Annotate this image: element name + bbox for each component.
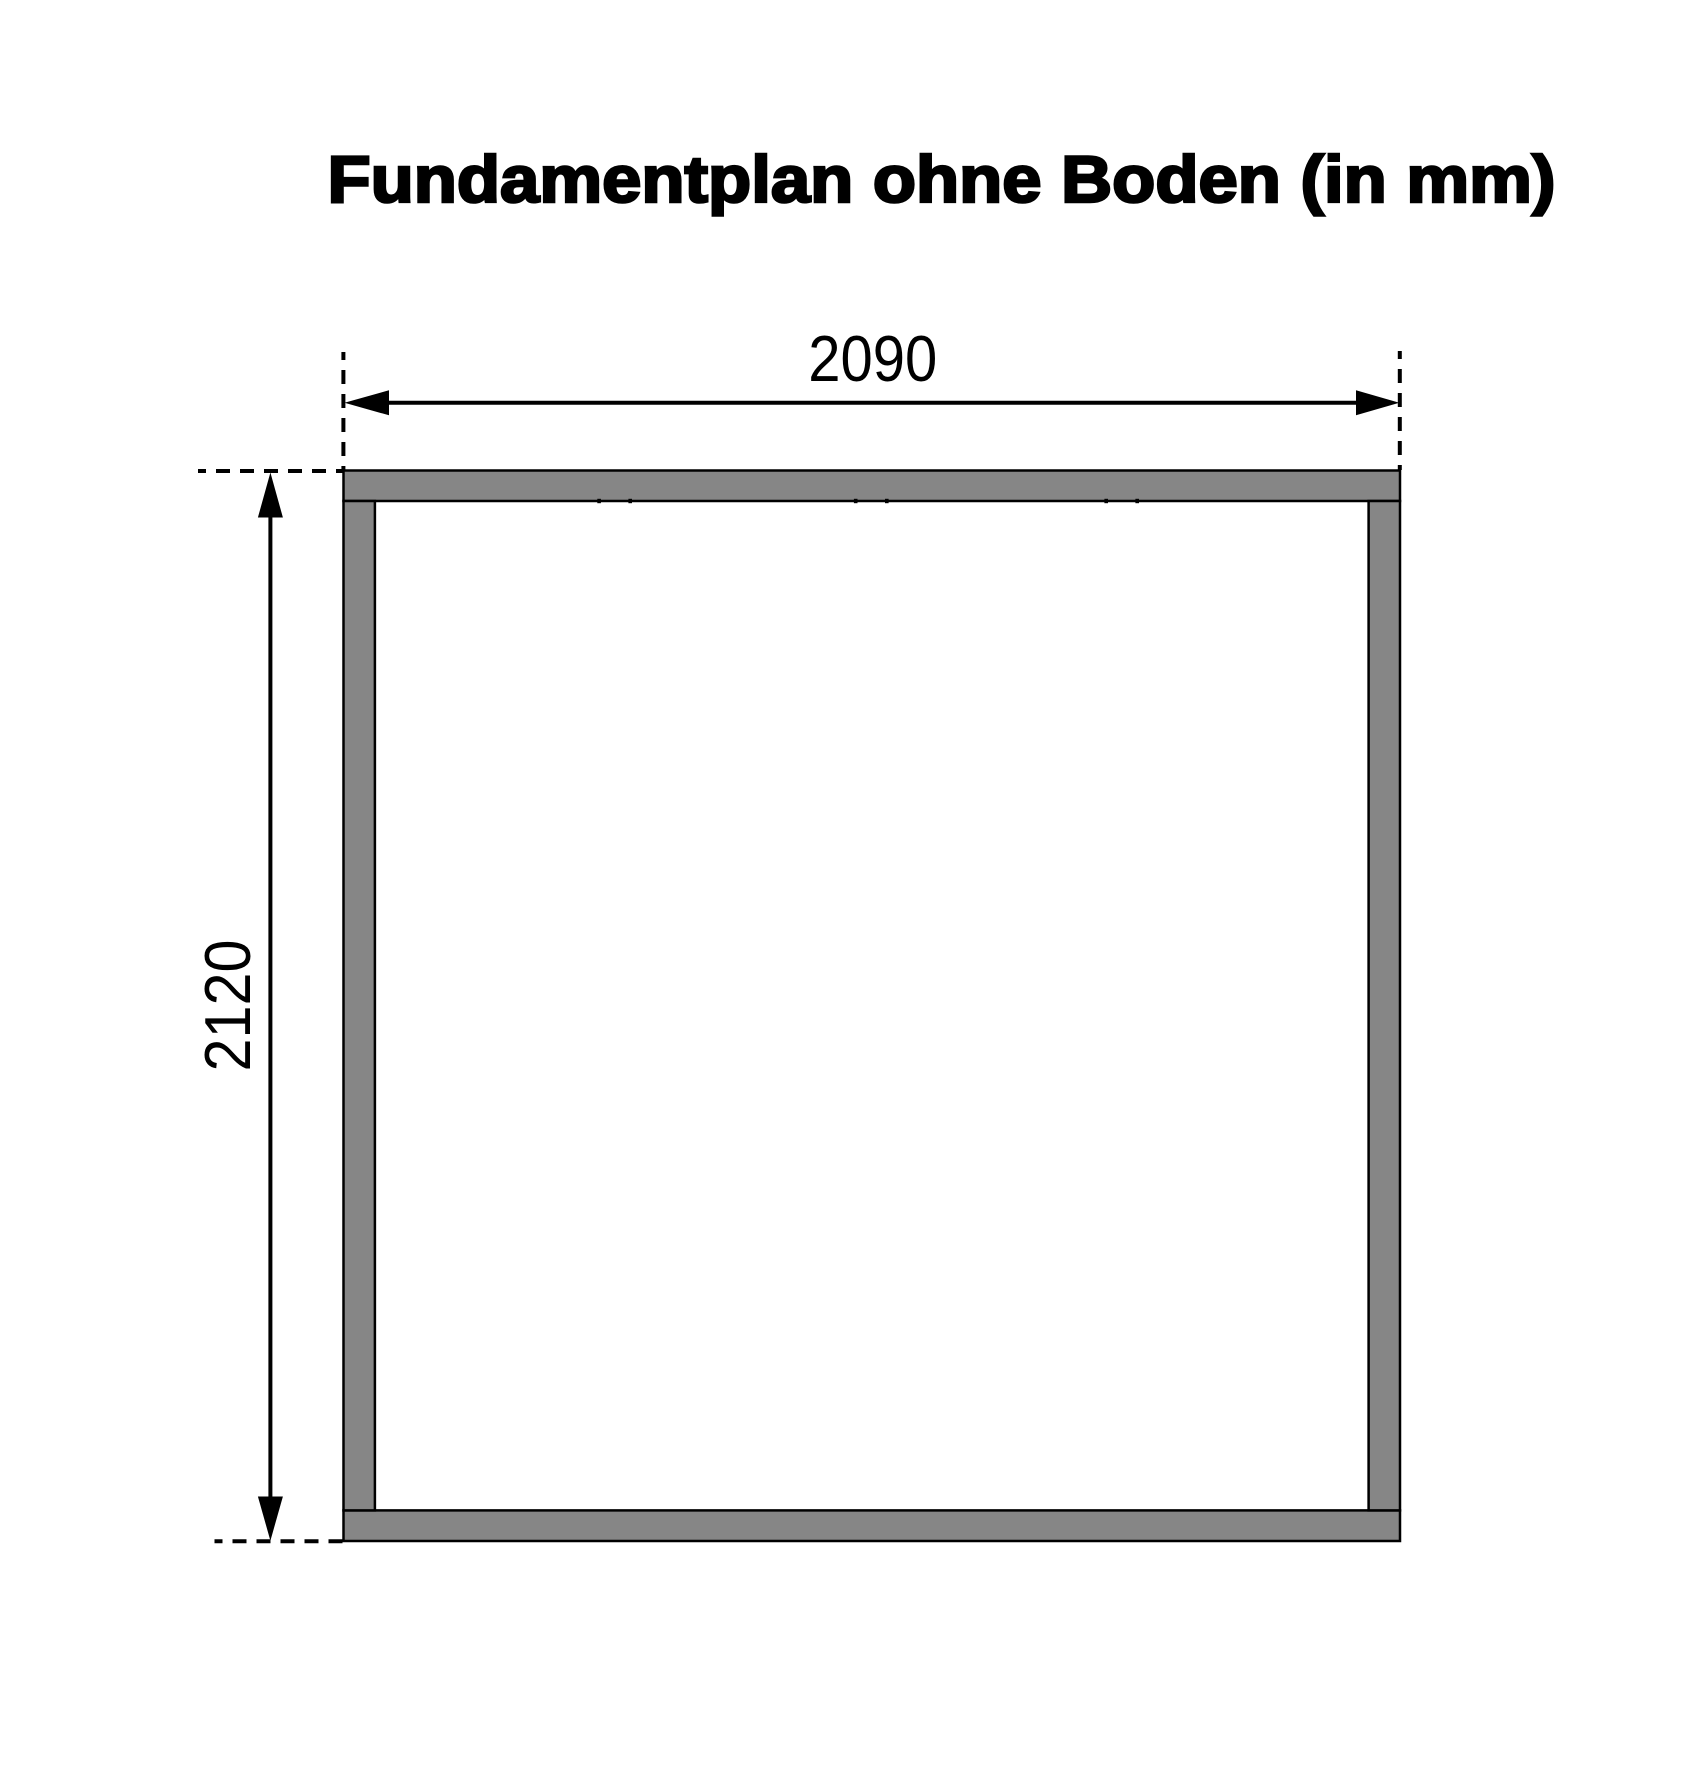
svg-text:2090: 2090 <box>808 322 937 395</box>
svg-text:Fundamentplan ohne Boden (in m: Fundamentplan ohne Boden (in mm) <box>328 142 1556 216</box>
svg-text:2120: 2120 <box>191 940 264 1072</box>
